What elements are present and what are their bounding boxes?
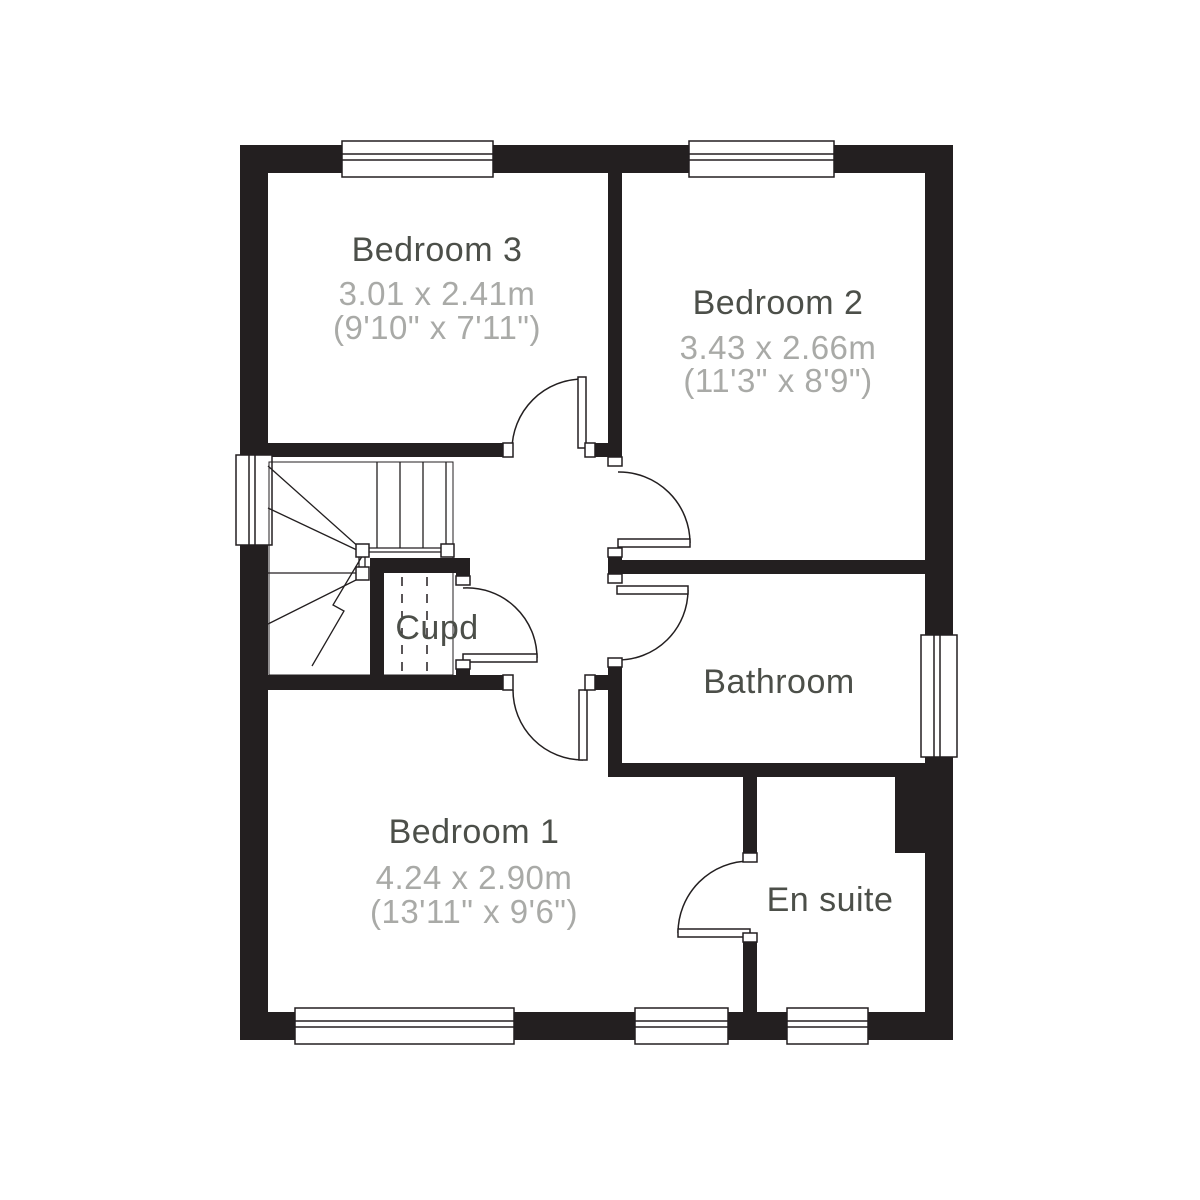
room-name-bedroom2: Bedroom 2 bbox=[693, 284, 864, 322]
door-leaf bbox=[463, 654, 537, 662]
window-ensuite bbox=[787, 1008, 868, 1044]
jamb-cap bbox=[608, 548, 622, 557]
door-bedroom2 bbox=[618, 472, 690, 547]
floor-plan-svg: Bedroom 3 3.01 x 2.41m (9'10" x 7'11") B… bbox=[0, 0, 1200, 1200]
room-metric-bedroom3: 3.01 x 2.41m bbox=[339, 275, 536, 312]
door-leaf bbox=[678, 929, 750, 937]
outer-wall-right bbox=[925, 145, 953, 1040]
room-metric-bedroom2: 3.43 x 2.66m bbox=[680, 329, 877, 366]
jamb-cap bbox=[608, 658, 622, 667]
outer-wall-left bbox=[240, 145, 268, 1040]
window-bedroom1-small bbox=[635, 1008, 728, 1044]
door-bathroom bbox=[617, 586, 688, 660]
room-metric-bedroom1: 4.24 x 2.90m bbox=[376, 859, 573, 896]
door-leaf bbox=[618, 539, 690, 547]
wall-cupd-top bbox=[370, 558, 470, 573]
room-name-bedroom3: Bedroom 3 bbox=[352, 231, 523, 269]
door-ensuite bbox=[678, 861, 750, 937]
door-leaf bbox=[617, 586, 688, 594]
jamb-cap bbox=[743, 933, 757, 942]
wall-bed3-bottom bbox=[268, 443, 512, 457]
jamb-cap bbox=[456, 660, 470, 669]
wall-bed3-bed2 bbox=[608, 173, 622, 466]
jamb-cap bbox=[608, 574, 622, 583]
door-swing-arc bbox=[512, 379, 583, 450]
doors bbox=[463, 377, 750, 937]
stairs-winder bbox=[268, 466, 361, 549]
label-bedroom3: Bedroom 3 3.01 x 2.41m (9'10" x 7'11") bbox=[333, 231, 541, 346]
label-bedroom2: Bedroom 2 3.43 x 2.66m (11'3" x 8'9") bbox=[680, 284, 877, 399]
jamb-cap bbox=[456, 576, 470, 585]
door-bedroom3 bbox=[512, 377, 586, 450]
wall-cupd-stairs bbox=[370, 558, 384, 688]
label-bedroom1: Bedroom 1 4.24 x 2.90m (13'11" x 9'6") bbox=[370, 813, 578, 930]
floor-plan: Bedroom 3 3.01 x 2.41m (9'10" x 7'11") B… bbox=[0, 0, 1200, 1200]
label-ensuite: En suite bbox=[767, 881, 894, 919]
window-bedroom1-large bbox=[295, 1008, 514, 1044]
window-bedroom2 bbox=[689, 141, 834, 177]
room-name-cupd: Cupd bbox=[395, 609, 478, 647]
wall-bed1-ensuite-b bbox=[743, 933, 757, 1013]
window-bathroom bbox=[921, 635, 957, 757]
jamb-cap bbox=[585, 675, 595, 690]
label-cupd: Cupd bbox=[395, 609, 478, 647]
label-bathroom: Bathroom bbox=[703, 663, 854, 701]
jamb-cap bbox=[743, 853, 757, 862]
ensuite-wall-notch bbox=[895, 777, 927, 853]
stairs-newel bbox=[356, 567, 369, 580]
room-name-bathroom: Bathroom bbox=[703, 663, 854, 701]
room-imperial-bedroom1: (13'11" x 9'6") bbox=[370, 893, 578, 930]
window-stairs bbox=[236, 455, 272, 545]
stairs-winder bbox=[268, 508, 359, 551]
wall-bed1-ensuite-a bbox=[743, 777, 757, 862]
wall-bed2-bathroom bbox=[618, 560, 925, 574]
door-swing-arc bbox=[618, 472, 690, 543]
jamb-cap bbox=[503, 443, 513, 457]
room-name-bedroom1: Bedroom 1 bbox=[389, 813, 560, 851]
room-imperial-bedroom3: (9'10" x 7'11") bbox=[333, 309, 541, 346]
jamb-cap bbox=[503, 675, 513, 690]
wall-bathroom-bottom bbox=[608, 763, 953, 777]
room-name-ensuite: En suite bbox=[767, 881, 894, 919]
door-swing-arc bbox=[678, 861, 750, 933]
door-leaf bbox=[578, 377, 586, 448]
stairs-newel bbox=[441, 544, 454, 557]
door-bedroom1 bbox=[513, 690, 587, 760]
window-bedroom3 bbox=[342, 141, 493, 177]
door-swing-arc bbox=[513, 690, 583, 760]
door-swing-arc bbox=[617, 590, 688, 660]
stairs-newel bbox=[356, 544, 369, 557]
room-imperial-bedroom2: (11'3" x 8'9") bbox=[683, 362, 872, 399]
jamb-cap bbox=[608, 457, 622, 466]
stairs-winder bbox=[268, 577, 362, 624]
door-leaf bbox=[579, 690, 587, 760]
jamb-cap bbox=[585, 443, 595, 457]
